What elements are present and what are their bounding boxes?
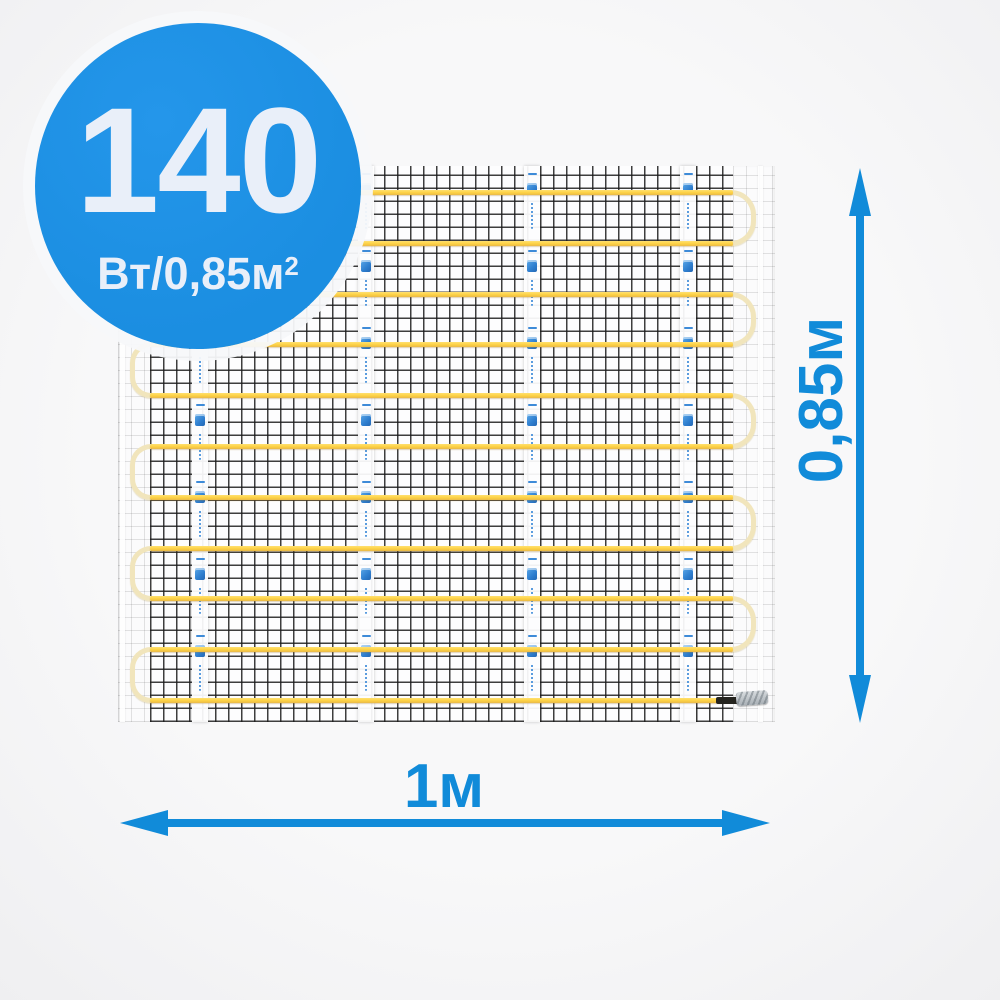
tape-segment bbox=[358, 243, 374, 320]
tape-microtext bbox=[687, 201, 689, 229]
tape-mark bbox=[362, 558, 371, 560]
brand-logo-icon bbox=[683, 260, 693, 272]
tape-microtext bbox=[531, 663, 533, 691]
cable-end-sleeve-icon bbox=[736, 690, 769, 706]
tape-segment bbox=[358, 628, 374, 705]
tape-microtext bbox=[199, 663, 201, 691]
tape-mark bbox=[362, 481, 371, 483]
tape-mark bbox=[528, 635, 537, 637]
tape-microtext bbox=[531, 201, 533, 229]
tape-mark bbox=[684, 327, 693, 329]
tape-segment bbox=[524, 243, 540, 320]
brand-logo-icon bbox=[195, 568, 205, 580]
brand-logo-icon bbox=[683, 414, 693, 426]
mat-right-edge bbox=[758, 166, 763, 722]
tape-microtext bbox=[687, 509, 689, 537]
tape-mark bbox=[196, 404, 205, 406]
tape-segment bbox=[680, 243, 696, 320]
brand-logo-icon bbox=[527, 568, 537, 580]
tape-mark bbox=[528, 404, 537, 406]
heating-cable-row bbox=[150, 647, 733, 652]
tape-segment bbox=[192, 474, 208, 551]
power-badge: 140 Вт/0,85м2 bbox=[35, 23, 361, 349]
tape-microtext bbox=[687, 663, 689, 691]
tape-microtext bbox=[365, 355, 367, 383]
heating-cable-row bbox=[150, 596, 733, 601]
arrow-right-icon bbox=[722, 810, 770, 836]
tape-segment bbox=[524, 551, 540, 628]
tape-microtext bbox=[199, 509, 201, 537]
cable-uturn-left bbox=[130, 444, 151, 500]
tape-microtext bbox=[365, 509, 367, 537]
tape-segment bbox=[358, 397, 374, 474]
tape-mark bbox=[362, 250, 371, 252]
product-image: 140 Вт/0,85м2 0,85м 1м bbox=[0, 0, 1000, 1000]
brand-logo-icon bbox=[683, 568, 693, 580]
tape-segment bbox=[680, 474, 696, 551]
tape-mark bbox=[362, 327, 371, 329]
tape-mark bbox=[362, 173, 371, 175]
tape-mark bbox=[362, 635, 371, 637]
heating-cable-row bbox=[150, 698, 722, 703]
tape-microtext bbox=[365, 201, 367, 229]
brand-logo-icon bbox=[527, 414, 537, 426]
arrow-left-icon bbox=[120, 810, 168, 836]
tape-mark bbox=[684, 250, 693, 252]
arrow-down-icon bbox=[849, 675, 871, 723]
tape-mark bbox=[196, 558, 205, 560]
tape-segment bbox=[524, 320, 540, 397]
tape-segment bbox=[524, 628, 540, 705]
tape-mark bbox=[196, 635, 205, 637]
width-label: 1м bbox=[344, 752, 544, 822]
power-unit-sup: 2 bbox=[284, 251, 298, 281]
tape-mark bbox=[528, 250, 537, 252]
tape-mark bbox=[684, 404, 693, 406]
tape-mark bbox=[528, 173, 537, 175]
tape-mark bbox=[684, 635, 693, 637]
brand-logo-icon bbox=[195, 414, 205, 426]
tape-microtext bbox=[531, 509, 533, 537]
tape-mark bbox=[684, 481, 693, 483]
tape-segment bbox=[524, 166, 540, 243]
brand-logo-icon bbox=[361, 260, 371, 272]
tape-segment bbox=[680, 397, 696, 474]
heating-cable-row bbox=[150, 393, 733, 398]
tape-segment bbox=[358, 320, 374, 397]
tape-mark bbox=[528, 481, 537, 483]
tape-mark bbox=[684, 558, 693, 560]
power-unit: Вт/0,85м2 bbox=[97, 251, 299, 296]
tape-segment bbox=[680, 320, 696, 397]
tape-microtext bbox=[531, 355, 533, 383]
heating-cable-row bbox=[150, 444, 733, 449]
tape-mark bbox=[196, 481, 205, 483]
tape-mark bbox=[528, 327, 537, 329]
tape-mark bbox=[528, 558, 537, 560]
tape-mark bbox=[362, 404, 371, 406]
brand-logo-icon bbox=[527, 260, 537, 272]
brand-logo-icon bbox=[361, 414, 371, 426]
tape-segment bbox=[192, 551, 208, 628]
tape-segment bbox=[680, 551, 696, 628]
tape-segment bbox=[524, 474, 540, 551]
brand-logo-icon bbox=[361, 568, 371, 580]
tape-microtext bbox=[199, 355, 201, 383]
power-unit-base: Вт/0,85м bbox=[97, 248, 284, 299]
tape-segment bbox=[680, 628, 696, 705]
tape-segment bbox=[524, 397, 540, 474]
tape-segment bbox=[358, 474, 374, 551]
tape-segment bbox=[192, 397, 208, 474]
height-arrow-shaft bbox=[856, 208, 864, 684]
tape-segment bbox=[358, 551, 374, 628]
tape-segment bbox=[680, 166, 696, 243]
heating-cable-row bbox=[150, 546, 733, 551]
tape-microtext bbox=[687, 355, 689, 383]
height-label: 0,85м bbox=[787, 250, 857, 550]
tape-microtext bbox=[365, 663, 367, 691]
heating-cable-row bbox=[150, 495, 733, 500]
power-value: 140 bbox=[76, 85, 320, 235]
tape-segment bbox=[192, 628, 208, 705]
tape-mark bbox=[684, 173, 693, 175]
